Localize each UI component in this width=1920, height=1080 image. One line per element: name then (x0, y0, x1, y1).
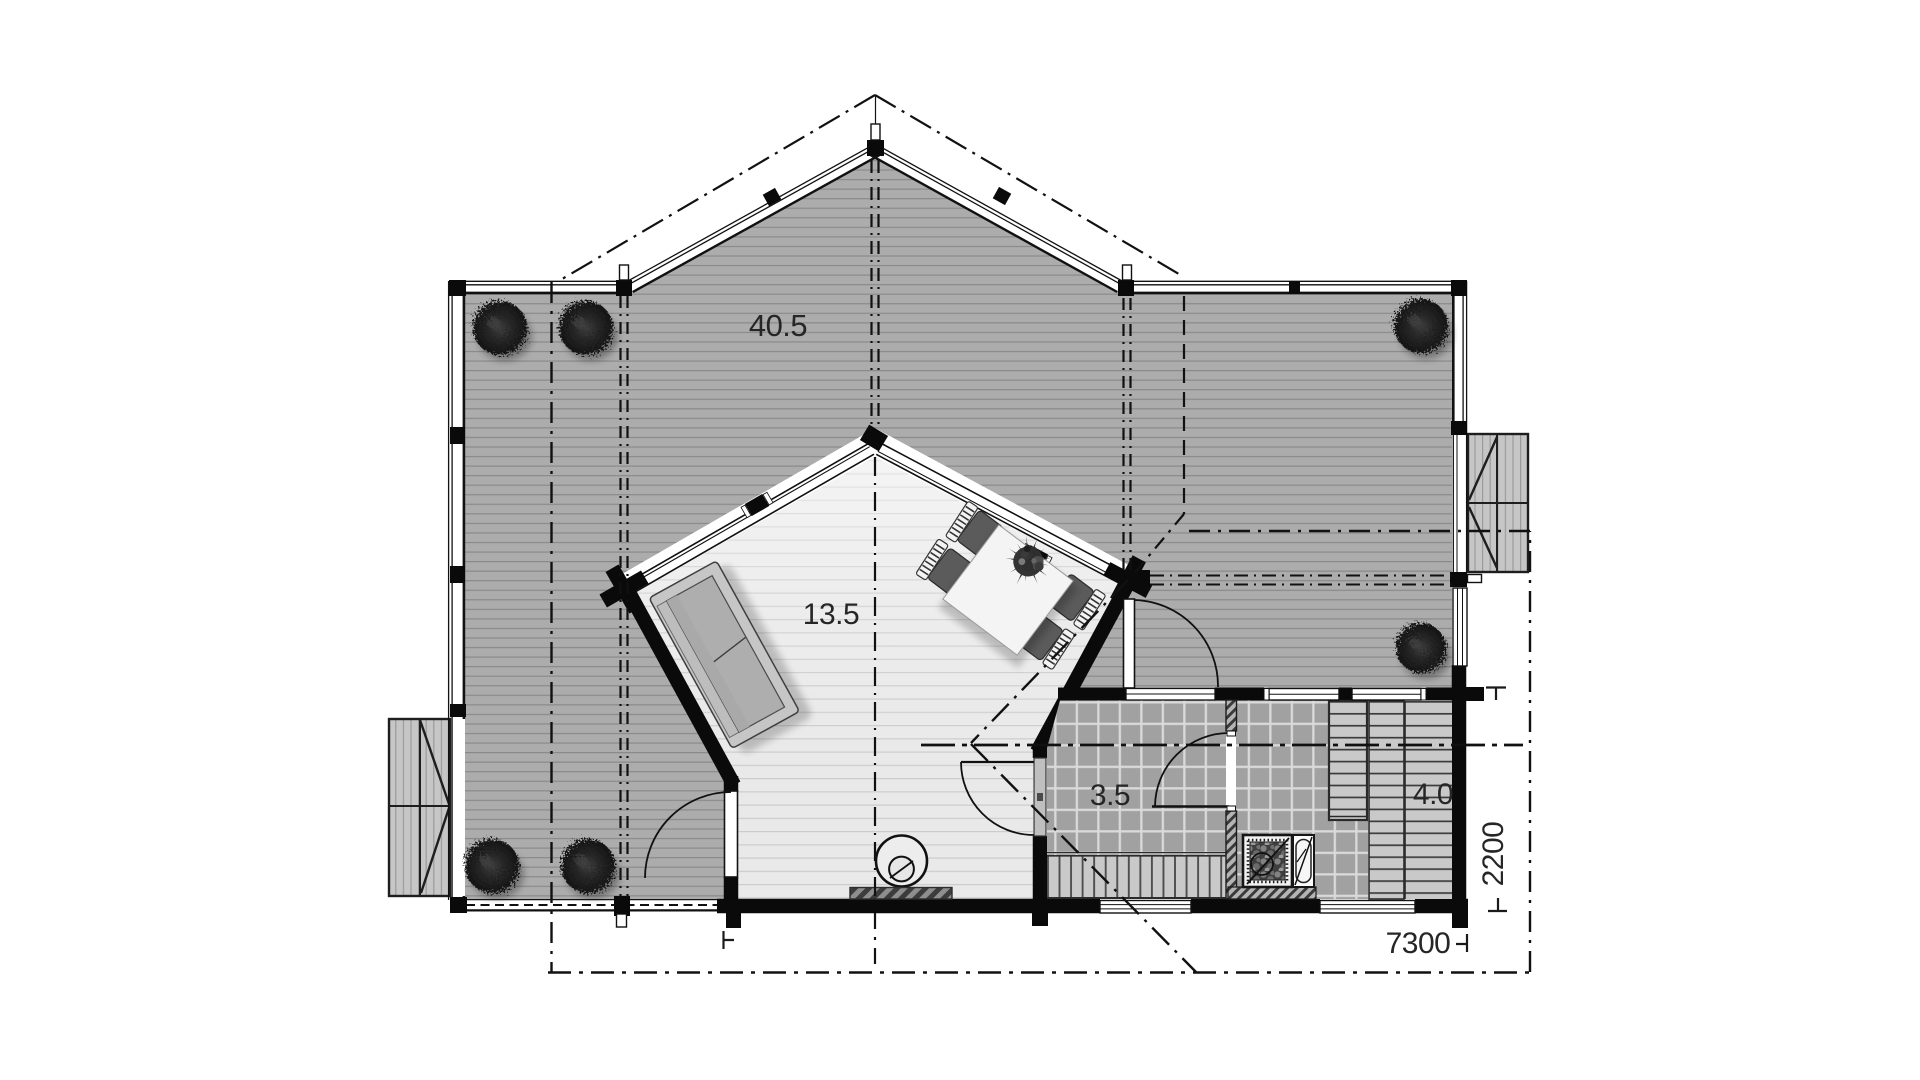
svg-text:7300: 7300 (1386, 927, 1451, 960)
svg-text:3.5: 3.5 (1090, 779, 1130, 812)
svg-text:4.0: 4.0 (1413, 778, 1453, 811)
svg-text:13.5: 13.5 (803, 598, 859, 631)
svg-text:2200: 2200 (1477, 822, 1510, 887)
svg-text:40.5: 40.5 (749, 308, 807, 343)
